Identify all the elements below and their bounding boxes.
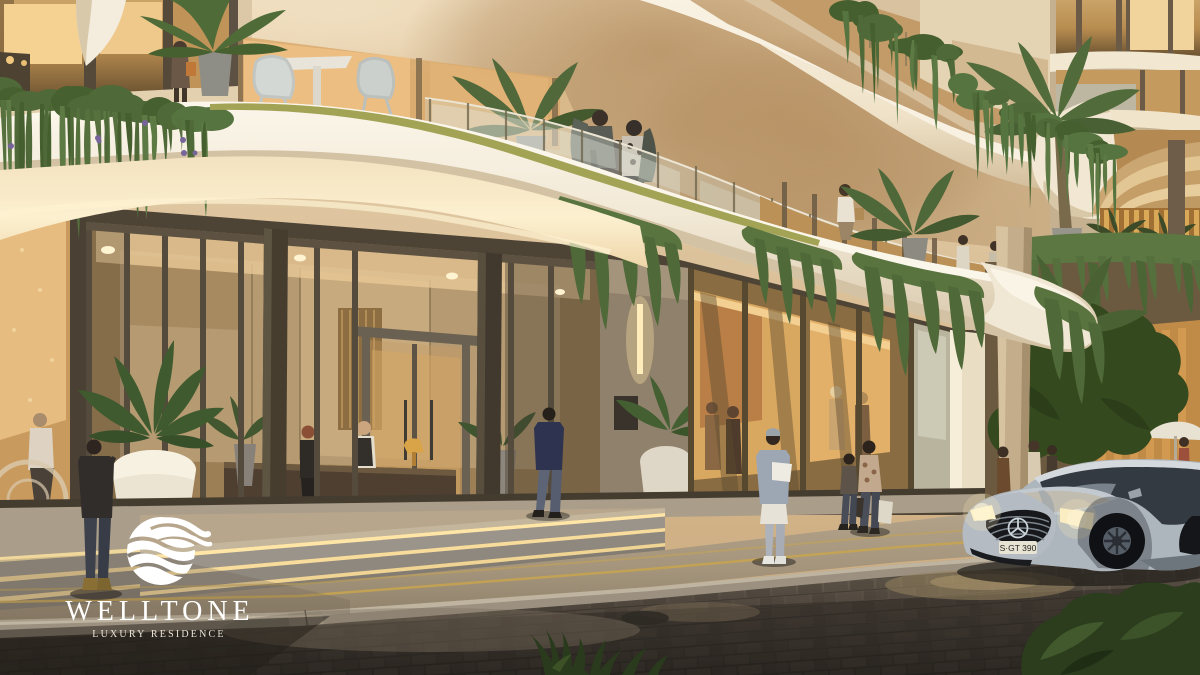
svg-text:WELLTONE: WELLTONE	[65, 596, 254, 627]
svg-text:LUXURY RESIDENCE: LUXURY RESIDENCE	[92, 629, 225, 640]
svg-text:S·GT 390: S·GT 390	[1000, 543, 1037, 553]
